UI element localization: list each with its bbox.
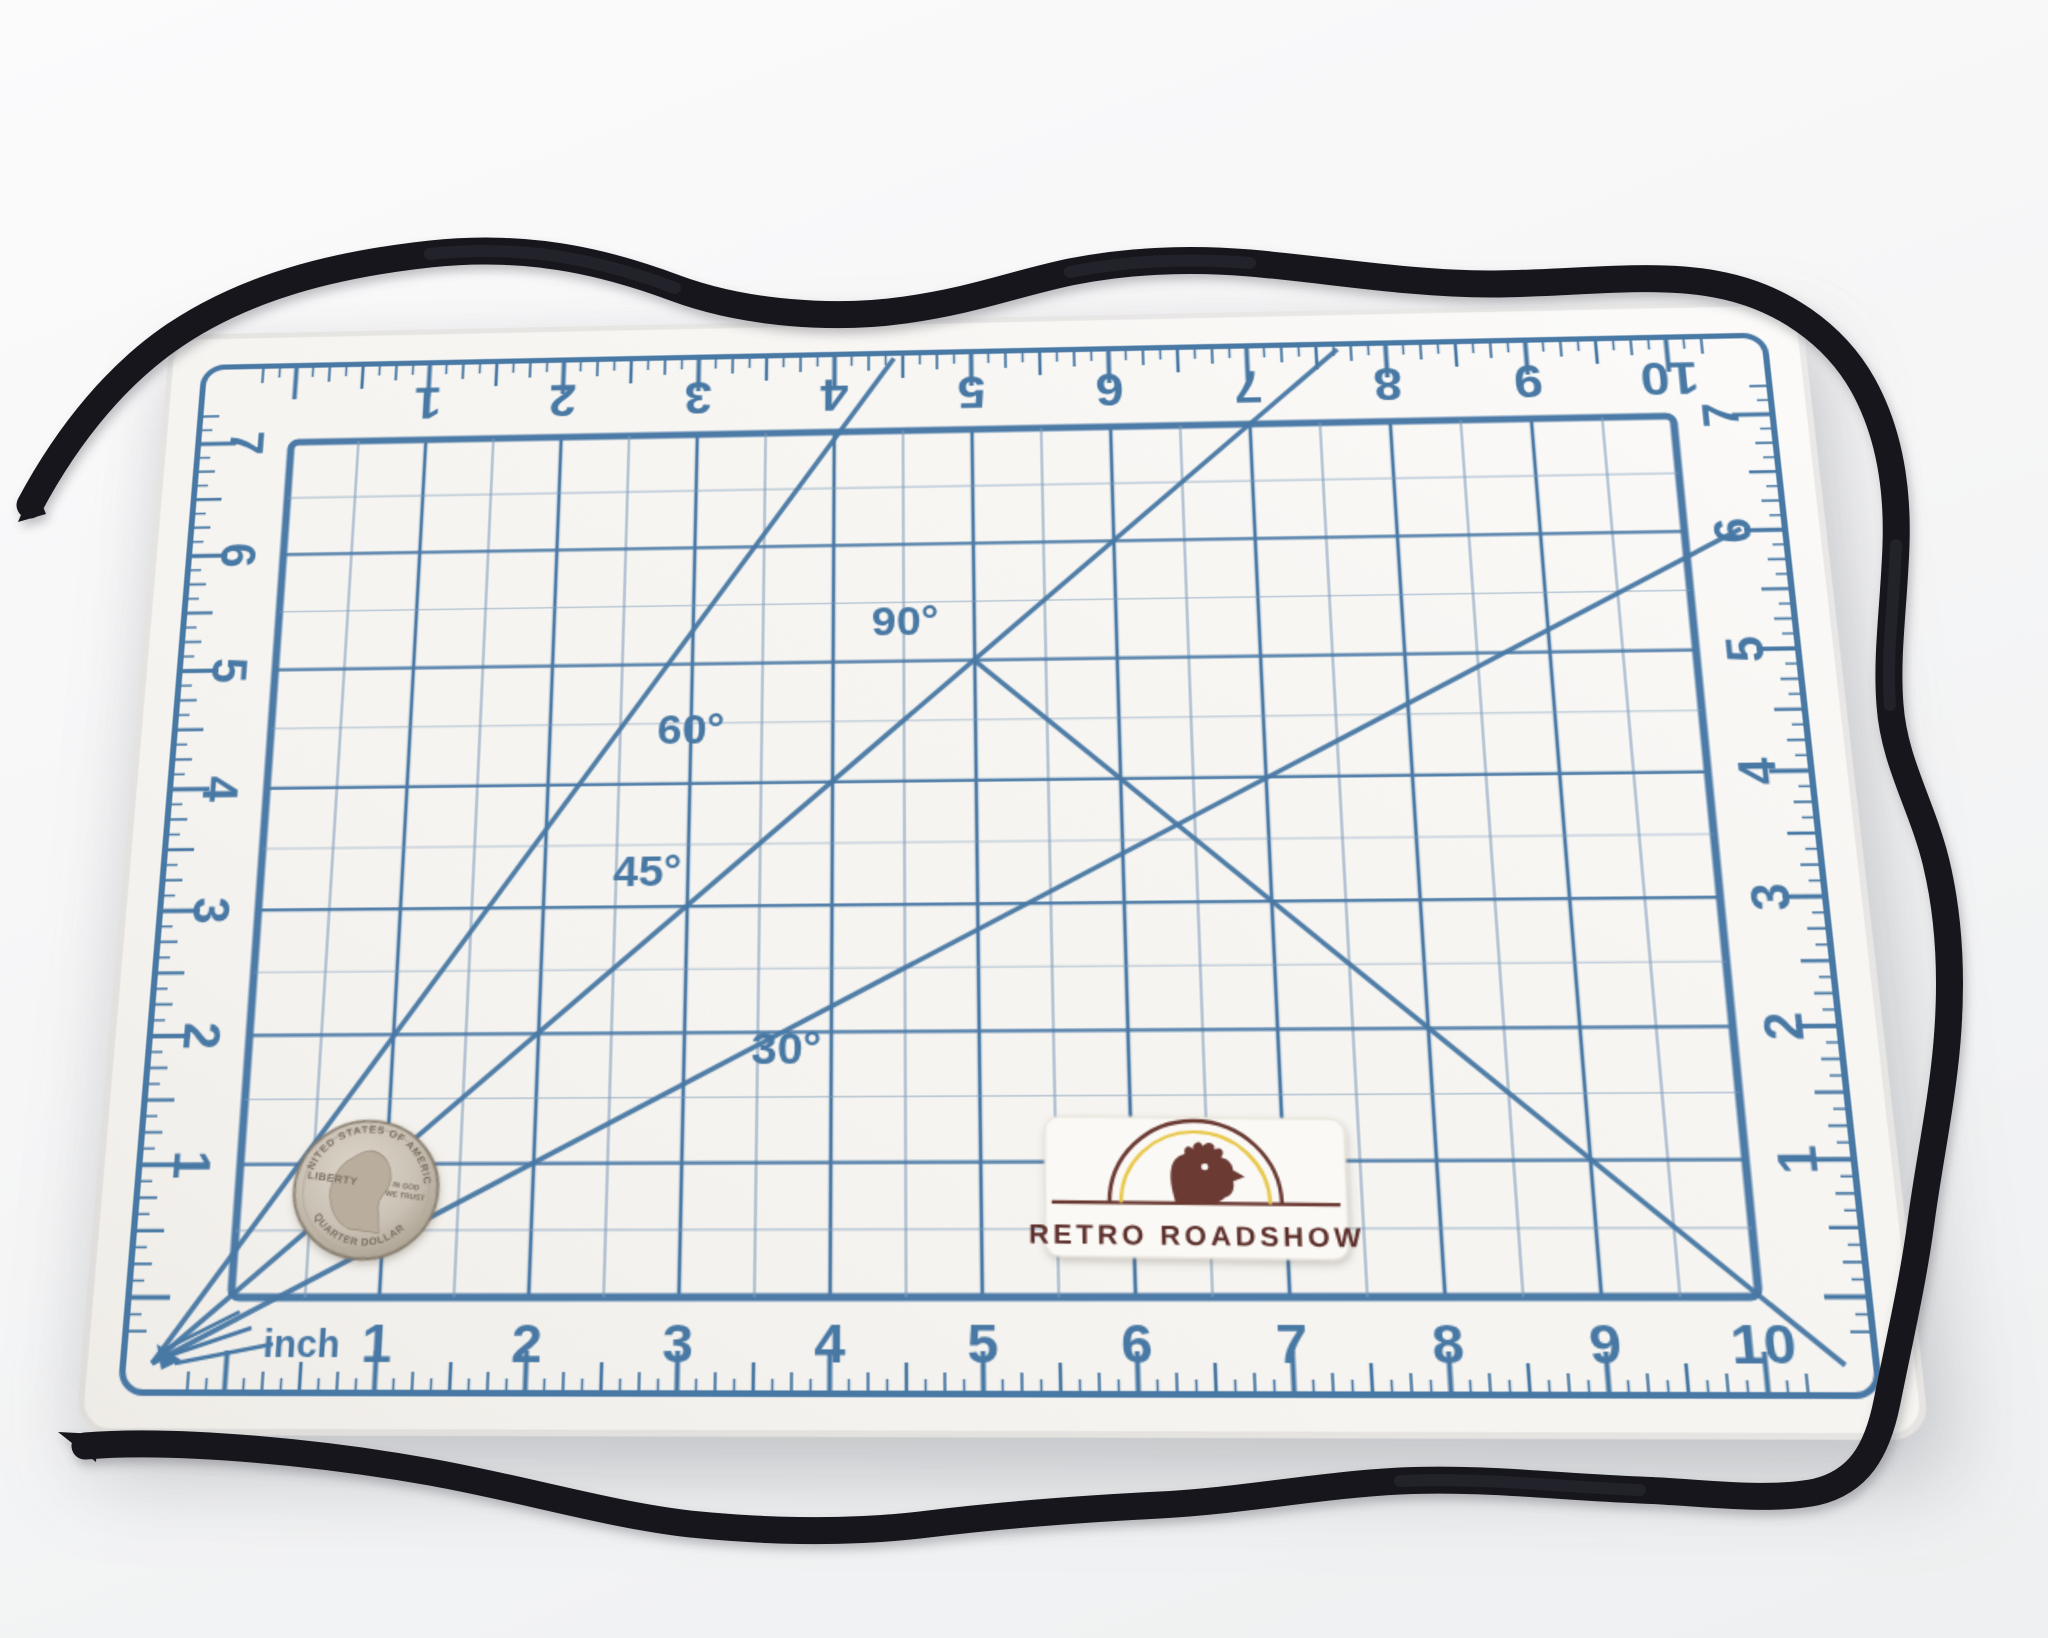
ruler-number-top: 3 — [684, 372, 713, 423]
ruler-number-left: 7 — [218, 431, 273, 456]
tick-top — [1229, 346, 1230, 358]
tick-top — [362, 364, 364, 389]
brand-text: RETRO ROADSHOW — [1029, 1219, 1366, 1253]
ruler-number-bottom: 9 — [1587, 1312, 1625, 1376]
tick-top — [379, 364, 380, 376]
ruler-number-top: 1 — [413, 378, 443, 429]
ruler-number-bottom: 1 — [360, 1312, 394, 1374]
ruler-number-left: 1 — [161, 1150, 221, 1179]
mat-sheen — [75, 300, 1930, 1440]
tick-bottom — [1707, 1380, 1708, 1395]
tick-top — [1701, 336, 1703, 353]
tick-bottom — [1332, 1373, 1333, 1395]
ruler-number-left: 5 — [200, 657, 257, 683]
ruler-number-top: 2 — [548, 375, 578, 426]
tick-bottom — [1727, 1374, 1729, 1396]
ruler-number-bottom: 6 — [1120, 1312, 1154, 1375]
tick-top — [294, 366, 296, 400]
tick-bottom — [280, 1378, 281, 1393]
cord-tip-top — [18, 484, 46, 522]
tick-bottom — [1254, 1373, 1255, 1395]
tick-top — [1595, 339, 1597, 364]
tick-bottom — [1352, 1380, 1353, 1395]
tick-top — [1143, 348, 1144, 365]
ruler-number-top: 8 — [1372, 358, 1404, 409]
tick-top — [1350, 344, 1351, 361]
tick-top — [597, 359, 598, 376]
ruler-number-bottom: 3 — [662, 1312, 694, 1374]
tick-bottom — [1060, 1363, 1061, 1394]
tick-bottom — [393, 1378, 394, 1393]
tick-bottom — [318, 1378, 319, 1393]
tick-top — [1040, 350, 1041, 375]
tick-bottom — [1588, 1380, 1589, 1395]
tick-bottom — [187, 1372, 189, 1393]
tick-top — [1490, 341, 1491, 358]
ruler-number-bottom: 8 — [1430, 1312, 1466, 1376]
tick-top — [513, 361, 514, 373]
angle-label-45: 45° — [613, 848, 683, 896]
ruler-number-right: 7 — [1692, 402, 1752, 428]
tick-top — [530, 361, 531, 378]
tick-bottom — [449, 1362, 450, 1393]
tick-bottom — [431, 1378, 432, 1393]
cutting-mat: 123456789101234567891076543217654321 30°… — [75, 300, 1930, 1440]
tick-bottom — [468, 1378, 469, 1393]
angle-label-30: 30° — [751, 1024, 822, 1074]
tick-bottom — [601, 1362, 602, 1393]
tick-top — [1613, 338, 1614, 350]
tick-top — [329, 365, 330, 382]
tick-top — [496, 361, 497, 386]
tick-bottom — [355, 1378, 356, 1393]
ruler-number-right: 3 — [1739, 883, 1802, 911]
tick-bottom — [563, 1372, 564, 1393]
tick-top — [1403, 343, 1404, 355]
ruler-number-bottom: 2 — [510, 1312, 543, 1374]
tick-top — [262, 366, 263, 383]
ruler-number-top: 7 — [1233, 361, 1264, 412]
tick-top — [1630, 338, 1632, 355]
ruler-number-bottom: 7 — [1275, 1312, 1310, 1375]
tick-top — [1420, 342, 1421, 359]
tick-bottom — [1568, 1373, 1570, 1395]
tick-top — [279, 366, 280, 378]
tick-bottom — [1647, 1373, 1649, 1395]
brand-label-plate: RETRO ROADSHOW — [1028, 1116, 1366, 1260]
tick-bottom — [262, 1372, 263, 1393]
tick-bottom — [506, 1378, 507, 1393]
tick-bottom — [1235, 1380, 1236, 1395]
inch-label: inch — [262, 1324, 341, 1365]
tick-bottom — [337, 1372, 338, 1393]
tick-bottom — [1549, 1380, 1550, 1395]
ruler-number-top: 10 — [1638, 352, 1701, 404]
tick-bottom — [1509, 1380, 1510, 1395]
tick-top — [1177, 347, 1178, 372]
tick-top — [1438, 342, 1439, 354]
tick-top — [1560, 339, 1561, 356]
angle-label-60: 60° — [657, 707, 725, 754]
ruler-number-top: 4 — [820, 370, 848, 421]
ruler-number-right: 5 — [1715, 636, 1776, 663]
ruler-number-top: 5 — [957, 367, 986, 418]
ruler-number-top: 6 — [1095, 364, 1125, 415]
tick-top — [480, 362, 481, 374]
tick-bottom — [487, 1372, 488, 1393]
tick-top — [1368, 343, 1369, 355]
tick-top — [313, 365, 314, 377]
tick-top — [463, 362, 464, 379]
tick-top — [1578, 339, 1579, 351]
tick-top — [631, 359, 632, 384]
tick-right — [1749, 471, 1779, 472]
tick-top — [446, 362, 447, 374]
photo-stage: 123456789101234567891076543217654321 30°… — [0, 0, 2048, 1638]
tick-top — [346, 365, 347, 377]
tick-bottom — [1787, 1380, 1789, 1395]
tick-bottom — [1431, 1380, 1432, 1395]
tick-bottom — [1274, 1380, 1275, 1395]
ruler-number-right: 4 — [1727, 757, 1789, 785]
ruler-number-bottom: 4 — [814, 1312, 846, 1375]
tick-top — [1543, 340, 1544, 352]
ruler-number-right: 1 — [1765, 1145, 1830, 1175]
ruler-number-left: 4 — [191, 775, 249, 802]
tick-bottom — [1215, 1363, 1216, 1395]
tick-bottom — [1747, 1380, 1748, 1395]
mat-surface: 123456789101234567891076543217654321 30°… — [75, 300, 1930, 1440]
tick-top — [1281, 345, 1282, 362]
tick-bottom — [1177, 1373, 1178, 1395]
tick-top — [1508, 340, 1509, 352]
tick-top — [1264, 346, 1265, 358]
tick-bottom — [1099, 1373, 1100, 1395]
tick-top — [1683, 337, 1684, 349]
tick-bottom — [412, 1372, 413, 1393]
tick-bottom — [1391, 1380, 1392, 1395]
tick-top — [1473, 341, 1474, 353]
tick-top — [1648, 338, 1649, 350]
tick-top — [1298, 345, 1299, 357]
tick-bottom — [639, 1372, 640, 1393]
tick-bottom — [1668, 1380, 1669, 1395]
tick-bottom — [1371, 1363, 1373, 1395]
ruler-number-top: 9 — [1512, 355, 1545, 407]
tick-bottom — [544, 1379, 545, 1394]
tick-bottom — [1411, 1373, 1412, 1395]
tick-top — [396, 364, 397, 381]
tick-bottom — [1313, 1380, 1314, 1395]
ruler-number-left: 3 — [181, 897, 240, 924]
tick-bottom — [1196, 1379, 1197, 1394]
angle-label-90: 90° — [872, 599, 939, 645]
ruler-number-left: 2 — [171, 1022, 230, 1050]
ruler-number-bottom: 5 — [967, 1312, 999, 1375]
tick-bottom — [1628, 1380, 1629, 1395]
cord-tip-bottom — [58, 1432, 98, 1462]
tick-top — [1212, 347, 1213, 364]
tick-bottom — [1528, 1363, 1530, 1395]
tick-top — [1455, 342, 1457, 367]
tick-bottom — [224, 1350, 227, 1392]
ruler-number-left: 6 — [210, 542, 266, 568]
tick-bottom — [299, 1362, 301, 1393]
tick-bottom — [206, 1378, 207, 1393]
ruler-number-right: 2 — [1752, 1012, 1816, 1041]
tick-bottom — [1470, 1380, 1471, 1395]
tick-bottom — [243, 1378, 244, 1393]
tick-top — [413, 363, 414, 375]
tick-bottom — [1489, 1373, 1490, 1395]
